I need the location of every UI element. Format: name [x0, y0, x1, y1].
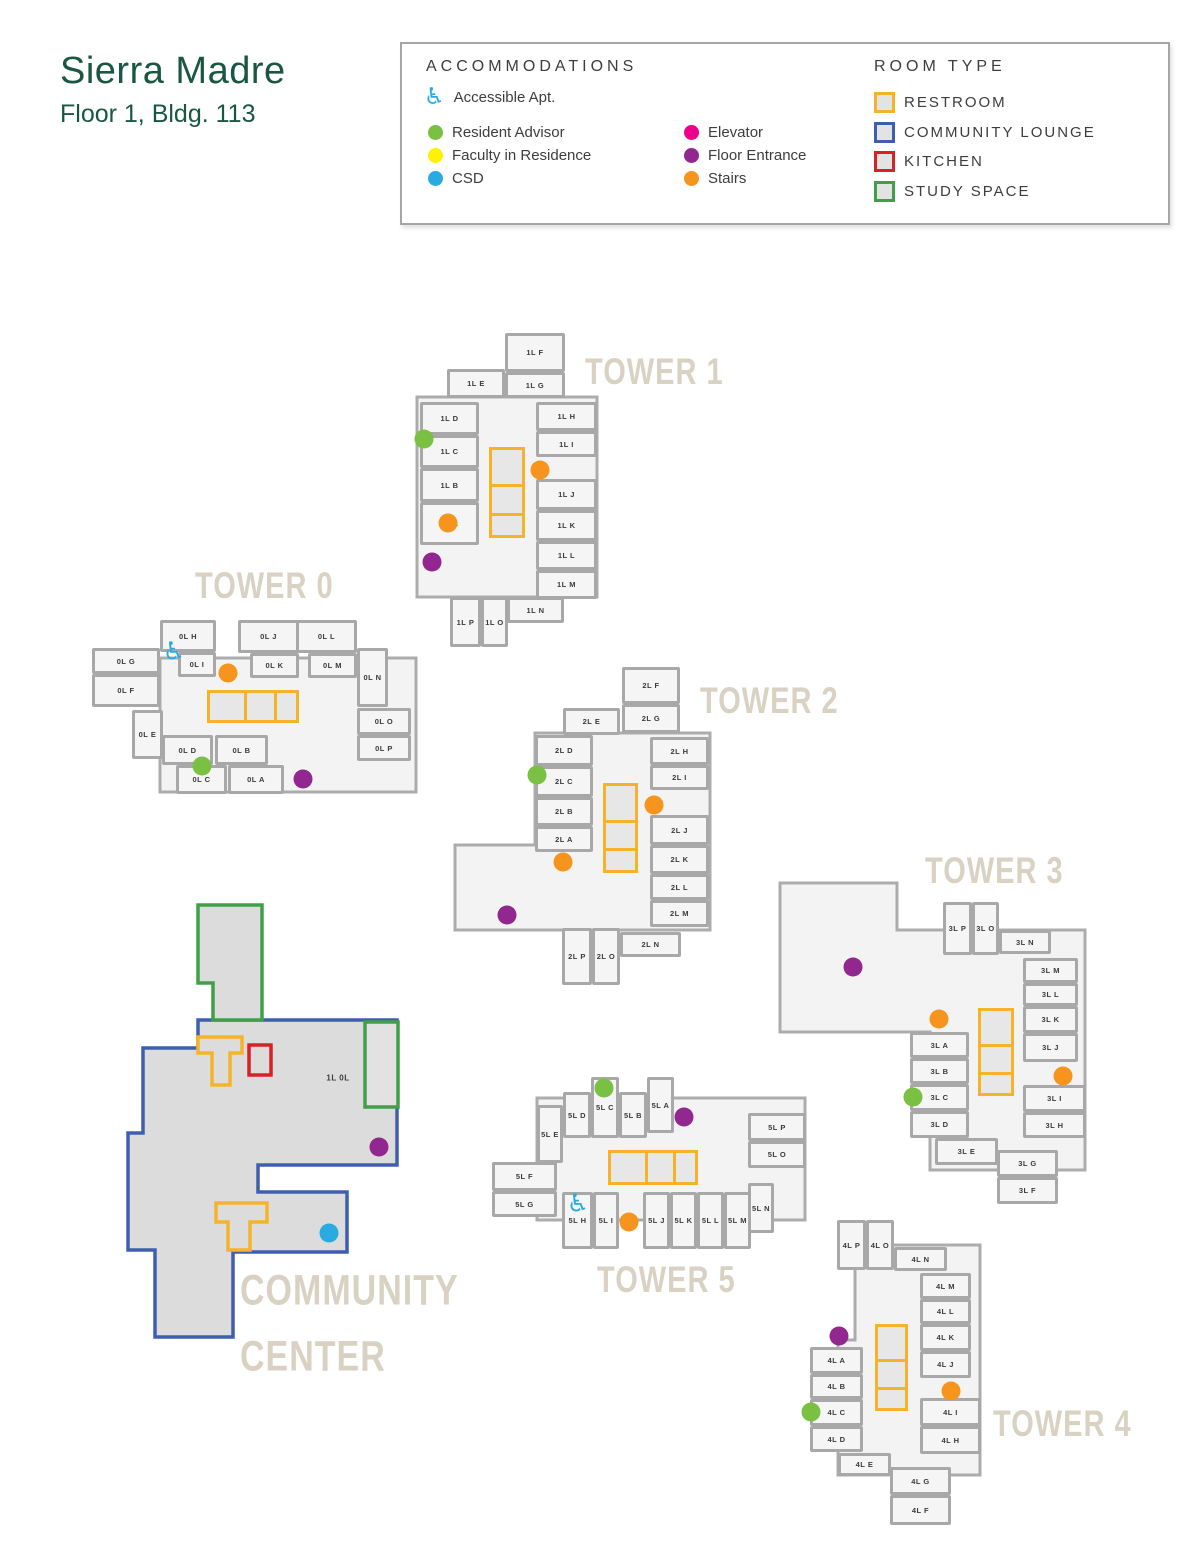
room-label: 1L B — [440, 481, 458, 490]
room-label: 2L F — [642, 681, 659, 690]
room-3l-l: 3L L — [1023, 983, 1078, 1006]
room-5l-a: 5L A — [647, 1077, 674, 1133]
restroom-divider — [244, 693, 247, 720]
room-0l-g: 0L G — [92, 648, 160, 674]
room-label: 1L O — [485, 618, 504, 627]
room-5l-d: 5L D — [563, 1092, 591, 1138]
room-4l-f: 4L F — [890, 1495, 951, 1525]
room-2l-g: 2L G — [622, 704, 680, 733]
room-3l-p: 3L P — [943, 902, 972, 955]
room-4l-e: 4L E — [838, 1453, 891, 1476]
room-label: 2L M — [670, 909, 689, 918]
room-4l-o: 4L O — [866, 1220, 894, 1270]
room-2l-p: 2L P — [562, 928, 592, 985]
room-0l-b: 0L B — [215, 735, 268, 765]
resident-advisor-marker — [193, 757, 212, 776]
restroom-divider — [878, 1387, 905, 1390]
room-3l-m: 3L M — [1023, 958, 1078, 983]
room-3l-d: 3L D — [910, 1111, 969, 1138]
room-label: 3L M — [1041, 966, 1060, 975]
room-0l-k: 0L K — [250, 653, 299, 678]
room-label: 5L A — [652, 1101, 670, 1110]
room-label: 0L G — [117, 657, 136, 666]
room-5l-b: 5L B — [619, 1092, 647, 1138]
room-1l-g: 1L G — [505, 372, 565, 398]
room-label: 2L L — [671, 883, 688, 892]
room-0l-o: 0L O — [357, 708, 411, 735]
room-label: 4L A — [828, 1356, 846, 1365]
room-4l-h: 4L H — [920, 1426, 981, 1454]
floor-entrance-marker — [294, 770, 313, 789]
room-label: 5L I — [599, 1216, 614, 1225]
tower-label-tower-2: TOWER 2 — [700, 681, 839, 723]
tower-5-restroom — [608, 1150, 698, 1185]
room-5l-p: 5L P — [748, 1113, 806, 1141]
floor-entrance-marker — [423, 553, 442, 572]
room-label: 0L M — [323, 661, 342, 670]
room-label: 0L D — [178, 746, 196, 755]
room-2l-f: 2L F — [622, 667, 680, 704]
room-1l-i: 1L I — [536, 431, 597, 457]
room-5l-g: 5L G — [492, 1191, 557, 1217]
restroom-divider — [492, 484, 522, 487]
stairs-marker — [645, 796, 664, 815]
room-label: 1L N — [526, 606, 544, 615]
room-label: 1L K — [557, 521, 575, 530]
tower-label-tower-3: TOWER 3 — [925, 851, 1064, 893]
room-1l-j: 1L J — [536, 479, 597, 510]
room-label: 4L H — [941, 1436, 959, 1445]
study-space-area — [198, 905, 262, 1020]
room-2l-a: 2L A — [535, 826, 593, 852]
tower-3-restroom — [978, 1008, 1014, 1096]
kitchen-area — [249, 1045, 271, 1075]
room-3l-j: 3L J — [1023, 1033, 1078, 1062]
room-label: 3L I — [1047, 1094, 1062, 1103]
tower-4-restroom — [875, 1324, 908, 1411]
room-label: 4L D — [827, 1435, 845, 1444]
room-2l-h: 2L H — [650, 737, 709, 765]
restroom-divider — [981, 1072, 1011, 1075]
restroom-divider — [274, 693, 277, 720]
room-label: 2L A — [555, 835, 573, 844]
restroom-divider — [673, 1153, 676, 1182]
room-2l-e: 2L E — [563, 708, 620, 735]
floor-plan-page: Sierra Madre Floor 1, Bldg. 113 ACCOMMOD… — [0, 0, 1200, 1553]
room-label: 1L G — [526, 381, 545, 390]
room-label: 0L B — [232, 746, 250, 755]
room-3l-h: 3L H — [1023, 1112, 1086, 1138]
room-label: 2L D — [555, 746, 573, 755]
room-label: 0L N — [363, 673, 381, 682]
room-label: 4L J — [937, 1360, 954, 1369]
room-label: 5L D — [568, 1111, 586, 1120]
room-4l-i: 4L I — [920, 1398, 981, 1426]
room-3l-f: 3L F — [997, 1177, 1058, 1204]
community-center-label-line: COMMUNITY — [240, 1258, 459, 1324]
room-label: 1L D — [440, 414, 458, 423]
room-2l-o: 2L O — [592, 928, 620, 985]
stairs-marker — [620, 1213, 639, 1232]
room-label: 0L I — [190, 660, 205, 669]
room-2l-l: 2L L — [650, 874, 709, 900]
room-label: 5L J — [648, 1216, 665, 1225]
room-label: 1L H — [557, 412, 575, 421]
restroom-divider — [645, 1153, 648, 1182]
stairs-marker — [1054, 1067, 1073, 1086]
room-1l-h: 1L H — [536, 402, 597, 431]
room-label: 3L O — [976, 924, 995, 933]
room-0l-f: 0L F — [92, 674, 160, 707]
community-room-label: 1L 0L — [326, 1074, 349, 1083]
room-label: 0L C — [192, 775, 210, 784]
room-label: 2L H — [670, 747, 688, 756]
room-label: 0L J — [260, 632, 277, 641]
stairs-marker — [531, 461, 550, 480]
room-label: 5L B — [624, 1111, 642, 1120]
tower-label-tower-4: TOWER 4 — [993, 1404, 1132, 1446]
room-5l-e: 5L E — [537, 1105, 563, 1163]
room-label: 1L M — [557, 580, 576, 589]
room-1l-l: 1L L — [536, 541, 597, 570]
room-4l-b: 4L B — [810, 1374, 863, 1399]
study-space-area-2 — [365, 1022, 398, 1107]
room-5l-j: 5L J — [643, 1192, 670, 1249]
community-center-label-line: CENTER — [240, 1324, 459, 1390]
resident-advisor-marker — [595, 1079, 614, 1098]
floor-entrance-marker — [675, 1108, 694, 1127]
room-label: 2L O — [597, 952, 616, 961]
floor-entrance-marker — [844, 958, 863, 977]
stairs-marker — [554, 853, 573, 872]
resident-advisor-marker — [528, 766, 547, 785]
room-2l-m: 2L M — [650, 900, 709, 927]
room-label: 4L N — [911, 1255, 929, 1264]
restroom-divider — [878, 1359, 905, 1362]
room-4l-d: 4L D — [810, 1426, 863, 1452]
floor-entrance-marker — [830, 1327, 849, 1346]
room-label: 3L E — [958, 1147, 976, 1156]
room-1l-f: 1L F — [505, 333, 565, 372]
room-label: 0L A — [247, 775, 265, 784]
room-label: 5L N — [752, 1204, 770, 1213]
room-label: 3L N — [1016, 938, 1034, 947]
room-2l-j: 2L J — [650, 815, 709, 845]
room-label: 1L I — [559, 440, 574, 449]
room-4l-p: 4L P — [837, 1220, 866, 1270]
room-label: 0L K — [265, 661, 283, 670]
room-label: 2L K — [670, 855, 688, 864]
room-label: 2L I — [672, 773, 687, 782]
room-0l-p: 0L P — [357, 735, 411, 761]
room-label: 0L P — [375, 744, 393, 753]
room-label: 3L B — [930, 1067, 948, 1076]
room-label: 5L K — [674, 1216, 692, 1225]
room-5l-i: 5L I — [593, 1192, 619, 1249]
room-5l-m: 5L M — [724, 1192, 751, 1249]
room-2l-n: 2L N — [620, 932, 681, 957]
room-1l-b: 1L B — [420, 468, 479, 502]
room-3l-b: 3L B — [910, 1058, 969, 1084]
room-label: 1L J — [558, 490, 575, 499]
room-label: 5L L — [702, 1216, 719, 1225]
room-label: 2L N — [641, 940, 659, 949]
room-2l-k: 2L K — [650, 845, 709, 874]
csd-marker — [320, 1224, 339, 1243]
room-3l-k: 3L K — [1023, 1006, 1078, 1033]
room-0l-e: 0L E — [132, 710, 163, 759]
stairs-marker — [439, 514, 458, 533]
room-label: 5L F — [516, 1172, 533, 1181]
tower-0-restroom — [207, 690, 299, 723]
room-label: 4L E — [856, 1460, 874, 1469]
tower-1-restroom — [489, 447, 525, 538]
stairs-marker — [219, 664, 238, 683]
room-1l-k: 1L K — [536, 510, 597, 541]
room-label: 5L G — [515, 1200, 534, 1209]
room-label: 0L F — [117, 686, 134, 695]
room-3l-a: 3L A — [910, 1032, 969, 1058]
room-2l-b: 2L B — [535, 797, 593, 826]
room-label: 3L J — [1042, 1043, 1059, 1052]
room-label: 3L L — [1042, 990, 1059, 999]
room-label: 5L E — [541, 1130, 559, 1139]
room-label: 1L F — [526, 348, 543, 357]
floor-entrance-marker — [498, 906, 517, 925]
room-label: 1L L — [558, 551, 575, 560]
room-label: 3L C — [930, 1093, 948, 1102]
room-label: 3L F — [1019, 1186, 1036, 1195]
room-label: 0L O — [375, 717, 394, 726]
room-label: 2L B — [555, 807, 573, 816]
room-3l-g: 3L G — [997, 1150, 1058, 1177]
room-label: 5L M — [728, 1216, 747, 1225]
stairs-marker — [930, 1010, 949, 1029]
room-label: 4L M — [936, 1282, 955, 1291]
room-label: 2L P — [568, 952, 586, 961]
room-5l-f: 5L F — [492, 1162, 557, 1191]
floor-entrance-marker — [370, 1138, 389, 1157]
room-label: 3L G — [1018, 1159, 1037, 1168]
room-0l-n: 0L N — [357, 648, 388, 707]
room-3l-e: 3L E — [935, 1138, 998, 1165]
room-label: 1L E — [467, 379, 485, 388]
room-5l-o: 5L O — [748, 1141, 806, 1168]
room-0l-j: 0L J — [238, 620, 299, 653]
room-1l-p: 1L P — [450, 597, 481, 647]
room-label: 5L P — [768, 1123, 786, 1132]
room-2l-d: 2L D — [535, 735, 593, 766]
room-label: 0L L — [318, 632, 335, 641]
room-label: 2L E — [583, 717, 601, 726]
restroom-divider — [606, 820, 635, 823]
room-4l-n: 4L N — [894, 1247, 947, 1271]
restroom-divider — [606, 848, 635, 851]
room-4l-a: 4L A — [810, 1347, 863, 1374]
room-3l-n: 3L N — [999, 930, 1051, 954]
room-4l-l: 4L L — [920, 1299, 971, 1324]
accessible-apt-icon: ♿ — [163, 639, 185, 664]
room-0l-l: 0L L — [296, 620, 357, 653]
room-4l-k: 4L K — [920, 1324, 971, 1351]
resident-advisor-marker — [802, 1403, 821, 1422]
room-4l-g: 4L G — [890, 1467, 951, 1495]
room-label: 4L C — [827, 1408, 845, 1417]
room-label: 4L P — [843, 1241, 861, 1250]
room-label: 0L E — [139, 730, 157, 739]
tower-label-tower-1: TOWER 1 — [585, 352, 724, 394]
room-label: 4L B — [827, 1382, 845, 1391]
resident-advisor-marker — [415, 430, 434, 449]
restroom-divider — [492, 513, 522, 516]
room-label: 5L C — [596, 1103, 614, 1112]
restroom-divider — [981, 1044, 1011, 1047]
resident-advisor-marker — [904, 1088, 923, 1107]
room-5l-n: 5L N — [748, 1183, 774, 1233]
room-label: 3L P — [949, 924, 967, 933]
room-5l-l: 5L L — [697, 1192, 724, 1249]
accessible-apt-icon: ♿ — [567, 1191, 589, 1216]
room-label: 4L K — [936, 1333, 954, 1342]
stairs-marker — [942, 1382, 961, 1401]
room-label: 2L C — [555, 777, 573, 786]
room-label: 3L H — [1045, 1121, 1063, 1130]
room-label: 3L K — [1041, 1015, 1059, 1024]
room-1l-n: 1L N — [507, 597, 564, 623]
room-label: 2L G — [642, 714, 661, 723]
room-label: 4L O — [871, 1241, 890, 1250]
room-label: 5L O — [768, 1150, 787, 1159]
room-label: 1L P — [457, 618, 475, 627]
room-5l-k: 5L K — [670, 1192, 697, 1249]
room-4l-j: 4L J — [920, 1351, 971, 1378]
room-0l-a: 0L A — [228, 765, 284, 794]
room-1l-e: 1L E — [447, 369, 505, 398]
community-center-label: COMMUNITYCENTER — [240, 1258, 459, 1390]
room-label: 3L D — [930, 1120, 948, 1129]
room-4l-m: 4L M — [920, 1273, 971, 1299]
room-3l-o: 3L O — [972, 902, 999, 955]
room-label: 4L F — [912, 1506, 929, 1515]
tower-2-restroom — [603, 783, 638, 873]
room-label: 3L A — [931, 1041, 949, 1050]
room-label: 1L C — [440, 447, 458, 456]
room-label: 4L I — [943, 1408, 958, 1417]
room-3l-i: 3L I — [1023, 1085, 1086, 1112]
tower-label-tower-5: TOWER 5 — [597, 1260, 736, 1302]
room-1l-m: 1L M — [536, 570, 597, 599]
room-0l-m: 0L M — [308, 653, 357, 678]
tower-label-tower-0: TOWER 0 — [195, 566, 334, 608]
room-1l-o: 1L O — [481, 597, 508, 647]
room-label: 2L J — [671, 826, 688, 835]
room-2l-i: 2L I — [650, 765, 709, 790]
room-label: 4L G — [911, 1477, 930, 1486]
room-label: 4L L — [937, 1307, 954, 1316]
